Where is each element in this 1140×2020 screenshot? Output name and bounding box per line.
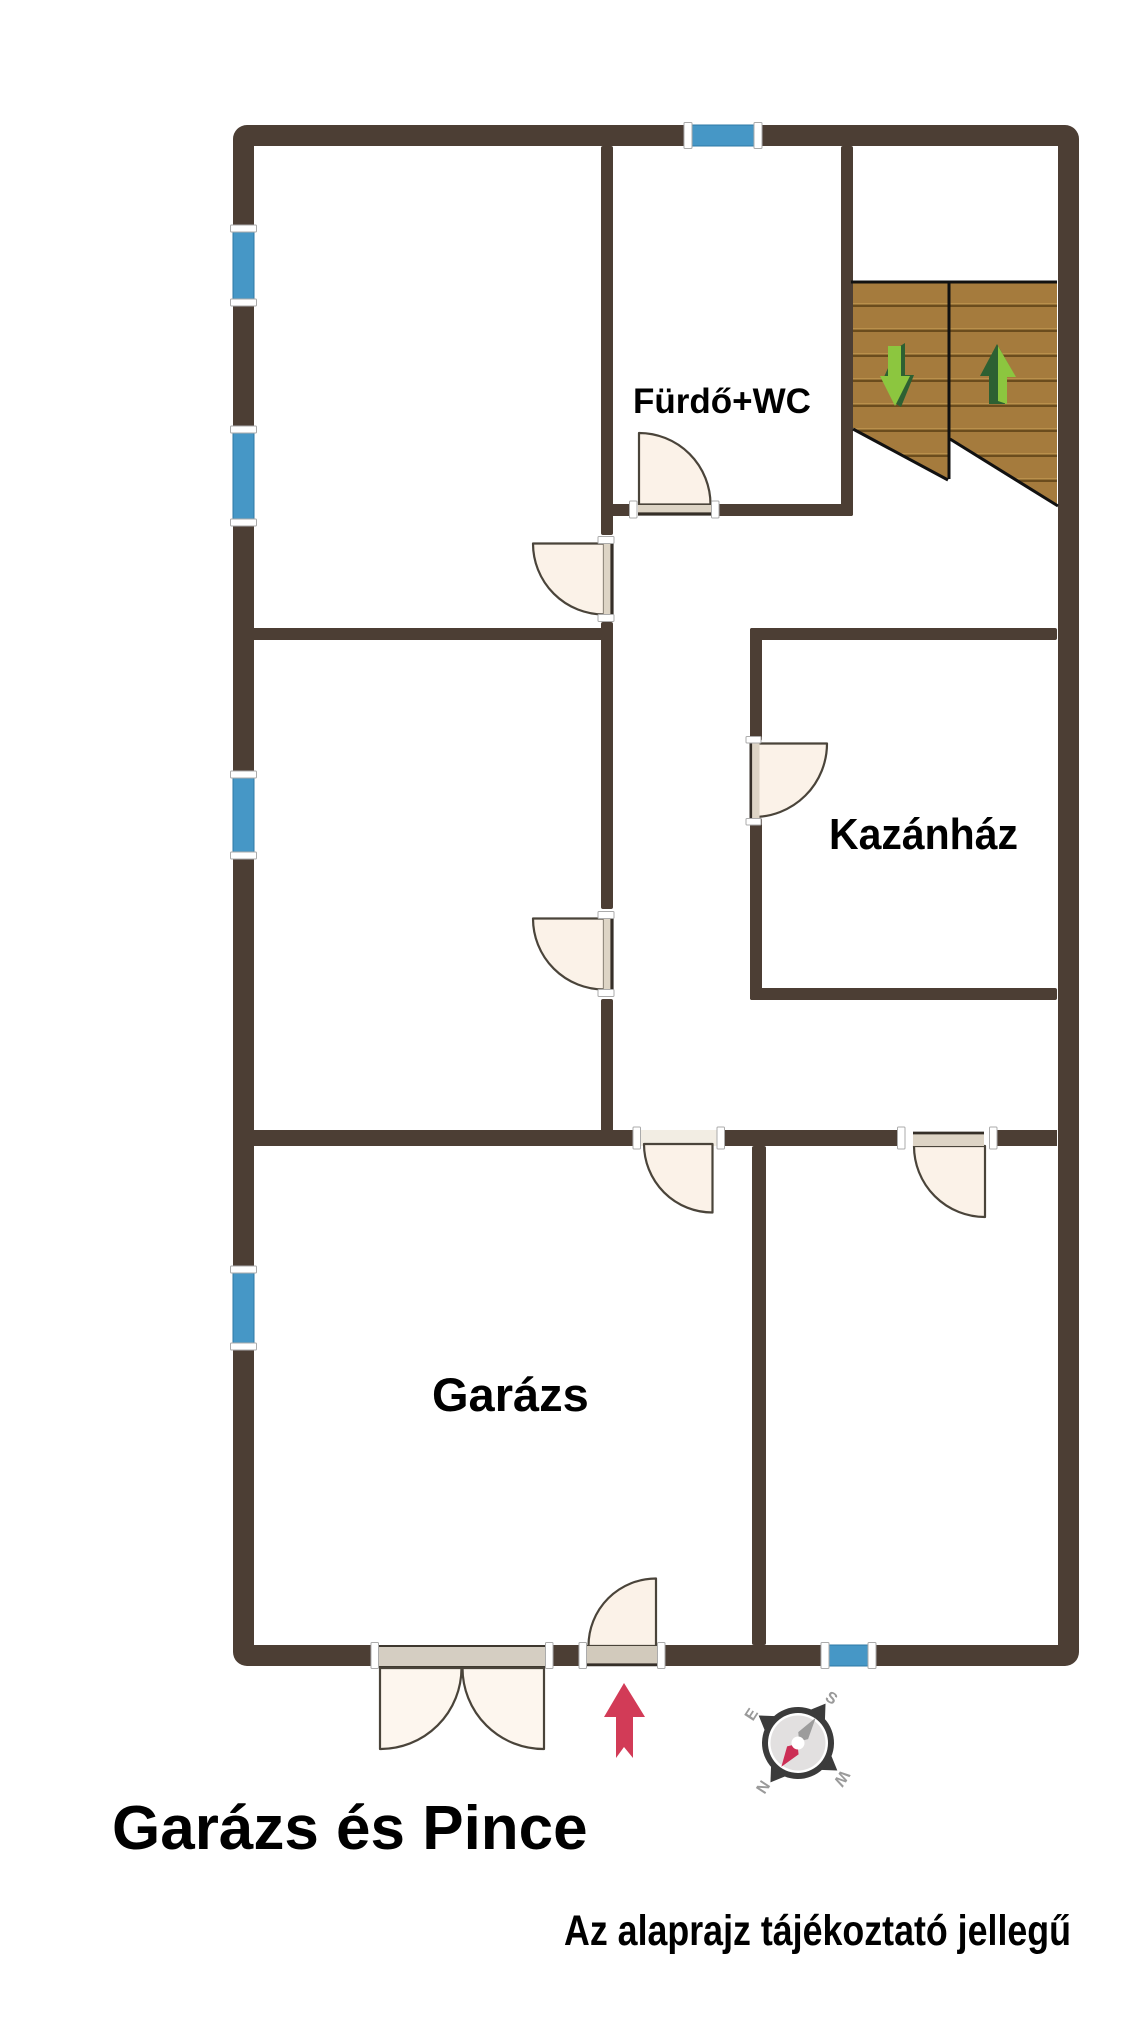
svg-text:Garázs: Garázs xyxy=(432,1368,589,1421)
svg-text:Fürdő+WC: Fürdő+WC xyxy=(633,382,811,421)
svg-text:Kazánház: Kazánház xyxy=(829,810,1018,859)
svg-text:E: E xyxy=(742,1705,762,1723)
svg-text:Az alaprajz tájékoztató jelleg: Az alaprajz tájékoztató jellegű xyxy=(564,1907,1071,1955)
svg-text:Garázs és Pince: Garázs és Pince xyxy=(112,1794,588,1863)
